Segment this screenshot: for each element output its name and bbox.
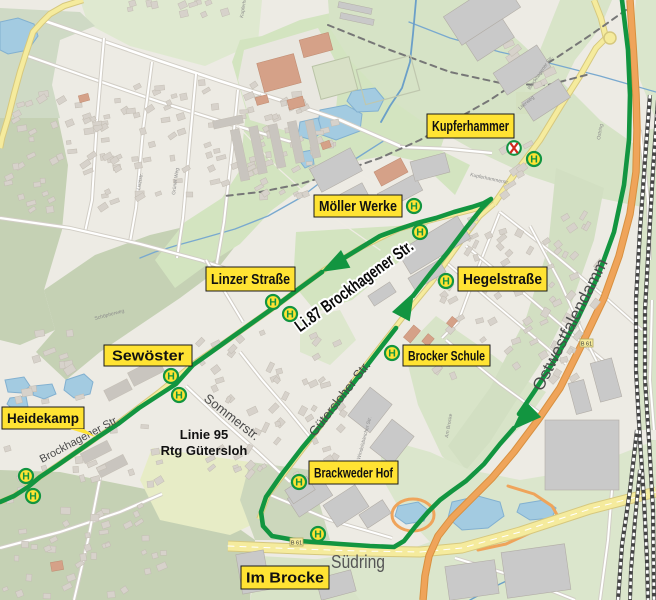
svg-text:H: H xyxy=(388,348,396,360)
svg-text:H: H xyxy=(175,390,183,402)
svg-text:H: H xyxy=(29,491,37,503)
svg-text:H: H xyxy=(269,297,277,309)
svg-text:Südring: Südring xyxy=(331,551,385,572)
svg-text:Linzer Straße: Linzer Straße xyxy=(211,272,290,288)
svg-text:H: H xyxy=(167,371,175,383)
svg-text:H: H xyxy=(22,471,30,483)
svg-text:Hegelstraße: Hegelstraße xyxy=(463,272,542,288)
svg-text:H: H xyxy=(314,529,322,541)
svg-text:Linie 95: Linie 95 xyxy=(180,427,228,442)
svg-text:Sewöster: Sewöster xyxy=(112,349,184,365)
svg-text:Heidekamp: Heidekamp xyxy=(7,411,79,426)
svg-text:H: H xyxy=(286,309,294,321)
svg-text:H: H xyxy=(442,276,450,288)
svg-text:Brocker Schule: Brocker Schule xyxy=(408,348,485,363)
svg-text:Im Brocke: Im Brocke xyxy=(246,571,324,587)
svg-text:Möller Werke: Möller Werke xyxy=(319,199,397,215)
svg-text:Kupferhammer: Kupferhammer xyxy=(432,119,509,135)
svg-text:H: H xyxy=(410,201,418,213)
svg-text:H: H xyxy=(416,227,424,239)
svg-text:B 61: B 61 xyxy=(291,540,302,546)
svg-text:H: H xyxy=(295,477,303,489)
svg-text:H: H xyxy=(530,154,538,166)
svg-text:Brackweder Hof: Brackweder Hof xyxy=(314,465,393,480)
svg-text:B 61: B 61 xyxy=(581,341,592,347)
svg-text:Rtg Gütersloh: Rtg Gütersloh xyxy=(161,443,248,458)
